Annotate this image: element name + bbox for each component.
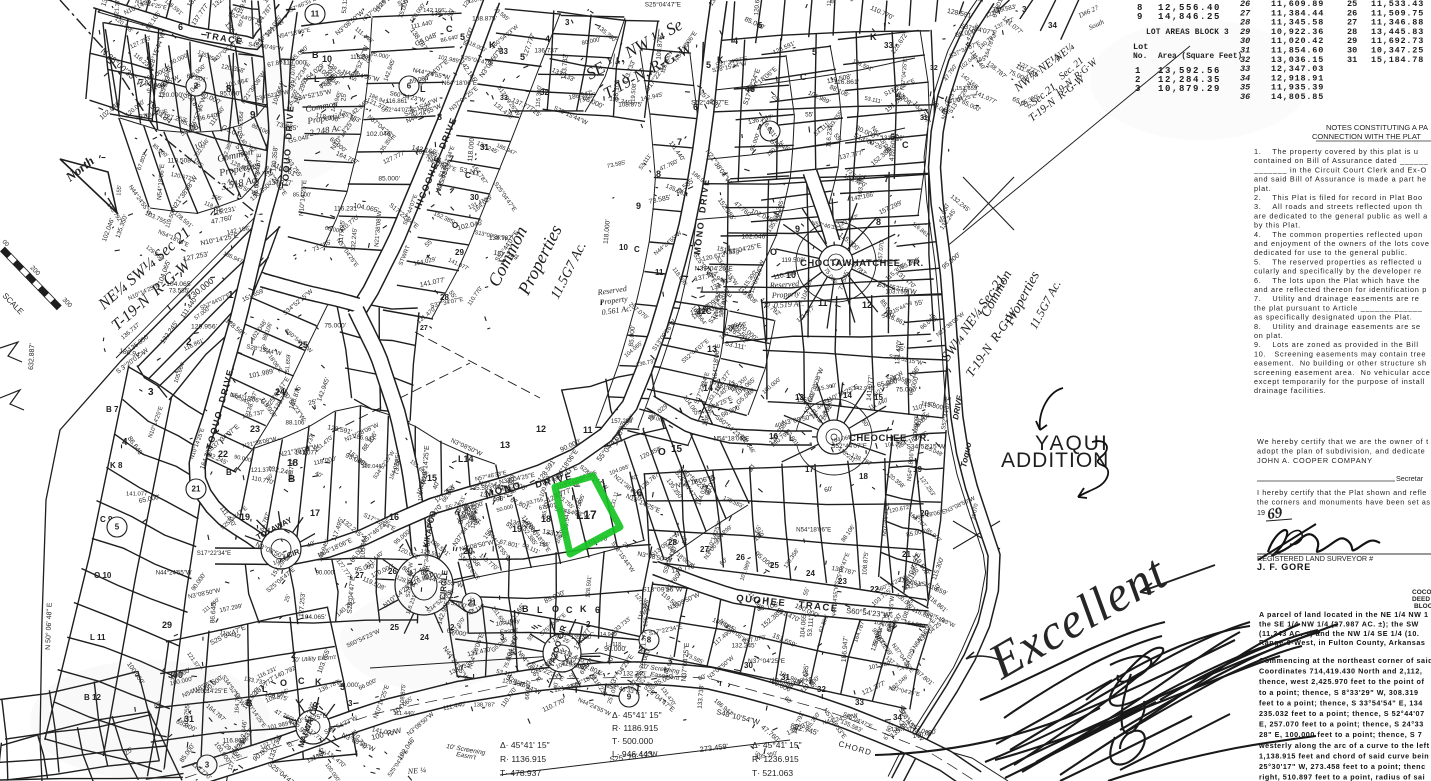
svg-text:120.672': 120.672' (889, 505, 911, 515)
svg-text:60': 60' (824, 486, 834, 495)
svg-text:36: 36 (1240, 92, 1250, 102)
svg-text:and are reflected thereon for: and are reflected thereon for identifica… (1254, 285, 1427, 294)
svg-text:11: 11 (311, 10, 320, 19)
svg-text:75.000': 75.000' (324, 322, 346, 329)
svg-text:85.000': 85.000' (543, 589, 566, 605)
svg-text:119.508': 119.508' (781, 257, 805, 264)
svg-text:27: 27 (420, 325, 428, 332)
svg-text:except temporarily for the pur: except temporarily for the purpose of in… (1254, 377, 1425, 386)
svg-text:55': 55' (527, 633, 536, 643)
svg-text:155': 155' (975, 56, 987, 64)
svg-text:2. This Plat is filed for r: 2. This Plat is filed for record in Plat… (1254, 193, 1423, 202)
svg-text:300: 300 (61, 297, 74, 310)
svg-text:S17°22'34"E: S17°22'34"E (197, 550, 231, 557)
svg-text:632.887': 632.887' (28, 343, 36, 370)
svg-text:19: 19 (1257, 508, 1265, 517)
svg-text:67.801': 67.801' (137, 152, 149, 172)
svg-text:118.000': 118.000' (313, 455, 337, 467)
svg-text:S25°04'47"E: S25°04'47"E (492, 181, 517, 213)
svg-text:S28°15'44"W: S28°15'44"W (552, 105, 588, 127)
svg-text:and said Bill of Assurance is: and said Bill of Assurance is made a par… (1254, 175, 1427, 184)
svg-text:O 10: O 10 (94, 571, 112, 580)
svg-text:and enjoyment of the owners of: and enjoyment of the owners of the lots … (1254, 239, 1430, 248)
svg-text:the corners and monuments have: the corners and monuments have been set … (1257, 498, 1431, 507)
svg-text:137.777': 137.777' (838, 150, 863, 162)
svg-text:3: 3 (348, 699, 353, 708)
svg-text:C: C (634, 245, 640, 254)
svg-text:N21°38'08"W: N21°38'08"W (373, 210, 383, 247)
svg-text:7. Utility and drainage eas: 7. Utility and drainage easements are re (1254, 294, 1420, 303)
svg-text:73.585': 73.585' (648, 194, 671, 205)
svg-text:135.583': 135.583' (722, 495, 744, 510)
svg-text:40': 40' (314, 471, 323, 480)
svg-text:C: C (800, 72, 807, 82)
svg-text:8: 8 (437, 112, 442, 122)
svg-text:34: 34 (1048, 21, 1057, 30)
svg-text:T· 500.000: T· 500.000 (612, 736, 653, 746)
svg-text:12: 12 (862, 300, 872, 310)
svg-text:JOHN A. COOPER COMPANY: JOHN A. COOPER COMPANY (1257, 456, 1373, 465)
svg-text:Area (Square Feet): Area (Square Feet) (1158, 53, 1242, 61)
svg-text:25': 25' (754, 751, 762, 760)
svg-text:CONNECTION WITH THE PLAT: CONNECTION WITH THE PLAT (1312, 132, 1421, 141)
svg-text:40': 40' (432, 480, 441, 490)
svg-text:19: 19 (913, 465, 922, 474)
svg-text:O: O (770, 247, 777, 257)
svg-text:1,138.915 feet and chord of sa: 1,138.915 feet and chord of said curve b… (1259, 751, 1429, 760)
svg-text:155': 155' (539, 542, 550, 548)
svg-text:18: 18 (859, 472, 868, 481)
svg-text:5. The reserved properties: 5. The reserved properties as reflected … (1254, 257, 1422, 266)
svg-text:32: 32 (817, 685, 826, 694)
svg-text:273.459': 273.459' (699, 742, 729, 754)
svg-text:adopt the plan of subdivision,: adopt the plan of subdivision, and dedic… (1257, 447, 1425, 456)
svg-text:133.733': 133.733' (697, 684, 706, 709)
svg-text:127.253': 127.253' (182, 251, 209, 263)
svg-text:101.989': 101.989' (267, 721, 290, 731)
svg-text:easement. No building or othe: easement. No building or other structure… (1254, 359, 1427, 368)
svg-text:dedicated for use to the gener: dedicated for use to the general public. (1254, 248, 1408, 257)
svg-text:Δ· 45°41' 15": Δ· 45°41' 15" (612, 710, 662, 720)
svg-text:4. The common properties re: 4. The common properties reflected upon (1254, 230, 1423, 239)
svg-text:110.770': 110.770' (869, 5, 894, 22)
svg-text:131.470': 131.470' (416, 306, 437, 325)
svg-text:R· 1136.915: R· 1136.915 (500, 754, 546, 764)
svg-text:47.760': 47.760' (659, 159, 679, 173)
svg-text:R· 1186.915: R· 1186.915 (612, 723, 658, 733)
svg-text:136.737': 136.737' (534, 48, 558, 55)
svg-text:11: 11 (583, 425, 593, 435)
svg-text:55': 55' (805, 111, 813, 118)
svg-text:31: 31 (1347, 55, 1357, 65)
svg-text:9: 9 (636, 201, 641, 211)
svg-text:80.000': 80.000' (581, 37, 601, 47)
svg-text:90.000': 90.000' (604, 646, 626, 653)
svg-text:No.: No. (1133, 52, 1147, 61)
svg-text:40': 40' (681, 536, 689, 545)
svg-text:115.300': 115.300' (536, 85, 544, 108)
svg-text:24: 24 (806, 569, 815, 578)
svg-text:C: C (446, 24, 453, 34)
svg-text:102.046': 102.046' (101, 217, 116, 242)
svg-text:40': 40' (449, 8, 456, 16)
svg-text:14,846.25: 14,846.25 (1158, 12, 1221, 22)
svg-text:151.659': 151.659' (285, 354, 293, 376)
svg-text:132.245': 132.245' (623, 670, 647, 677)
svg-text:K 8: K 8 (110, 461, 123, 470)
svg-text:are dedicated to the general p: are dedicated to the general public as w… (1254, 211, 1428, 220)
svg-text:L· 946.443: L· 946.443 (612, 749, 653, 759)
svg-text:T· 478.937: T· 478.937 (500, 768, 541, 778)
svg-text:L14: L14 (458, 454, 474, 464)
svg-text:the SE 1/4 NW 1/4 (27.987 AC.: the SE 1/4 NW 1/4 (27.987 AC. ±); the SW (1259, 619, 1419, 628)
svg-text:5: 5 (812, 47, 817, 57)
svg-text:85.000': 85.000' (743, 16, 766, 32)
svg-text:B: B (312, 50, 319, 60)
svg-text:142.945': 142.945' (640, 92, 663, 103)
svg-text:as specifically designated upo: as specifically designated upon the Plat… (1254, 313, 1413, 322)
svg-text:6. The lots upon the Plat w: 6. The lots upon the Plat which have the (1254, 276, 1420, 285)
svg-text:N64°18'06"E: N64°18'06"E (745, 65, 779, 96)
svg-text:by this Plat.: by this Plat. (1254, 221, 1301, 230)
svg-text:152.385': 152.385' (716, 197, 736, 222)
svg-text:6: 6 (595, 605, 600, 615)
svg-text:00: 00 (1, 239, 10, 248)
svg-text:55': 55' (802, 587, 811, 597)
svg-text:164.787': 164.787' (853, 620, 866, 644)
svg-text:feet to a point; thence, S 33°: feet to a point; thence, S 33°54'54" E, … (1259, 698, 1423, 707)
svg-text:7: 7 (884, 174, 889, 184)
svg-text:25': 25' (897, 346, 905, 353)
svg-text:53.111': 53.111' (521, 543, 540, 556)
svg-text:32: 32 (930, 65, 938, 72)
svg-text:S52°44'07"E: S52°44'07"E (691, 98, 729, 106)
svg-text:S52°44'07"E: S52°44'07"E (831, 442, 867, 450)
svg-text:85.000': 85.000' (378, 175, 400, 182)
svg-text:15: 15 (671, 444, 683, 455)
svg-text:21: 21 (902, 550, 911, 559)
svg-text:C: C (298, 676, 305, 686)
svg-text:5: 5 (706, 60, 711, 70)
svg-text:66.000': 66.000' (358, 678, 378, 692)
svg-text:157.299': 157.299' (219, 603, 243, 615)
svg-text:67.801': 67.801' (915, 669, 935, 687)
svg-text:10,879.29: 10,879.29 (1158, 84, 1221, 94)
svg-text:3: 3 (1022, 5, 1027, 14)
svg-text:Property: Property (771, 289, 801, 300)
svg-text:Secretar: Secretar (1396, 474, 1424, 483)
svg-text:11: 11 (818, 298, 828, 308)
svg-text:B 7: B 7 (106, 405, 119, 414)
svg-text:C: C (566, 605, 573, 615)
svg-text:screening easement area. No v: screening easement area. No vehicular ac… (1254, 368, 1431, 377)
svg-text:80.000': 80.000' (169, 52, 190, 67)
svg-text:right, 510.897 feet to a point: right, 510.897 feet to a point, radius o… (1259, 773, 1425, 781)
svg-text:K: K (870, 32, 877, 42)
svg-text:53.111': 53.111' (807, 616, 816, 637)
svg-text:Coordinates 714,419.430 North: Coordinates 714,419.430 North and 2,112, (1259, 667, 1422, 676)
svg-text:86.640': 86.640' (440, 35, 459, 45)
svg-text:10. Screening easements may: 10. Screening easements may contain tree (1254, 349, 1426, 358)
svg-text:118.000': 118.000' (467, 136, 476, 162)
svg-text:O: O (552, 604, 559, 614)
svg-text:28" E, 100.000 feet to a point: 28" E, 100.000 feet to a point; thence, … (1259, 730, 1422, 739)
svg-text:9. Lots are zoned as provid: 9. Lots are zoned as provided in the Bil… (1254, 340, 1419, 349)
svg-text:12: 12 (536, 424, 546, 434)
svg-text:102.046': 102.046' (742, 234, 767, 241)
svg-text:3: 3 (1135, 84, 1140, 94)
svg-text:6: 6 (178, 22, 183, 32)
svg-text:_______ in the Circuit Court C: _______ in the Circuit Court Clerk and E… (1253, 165, 1427, 174)
svg-text:L: L (537, 605, 543, 615)
svg-text:B: B (226, 468, 232, 477)
svg-text:S34°52'15"W: S34°52'15"W (888, 354, 924, 367)
svg-text:D#6 2?: D#6 2? (1077, 4, 1101, 21)
svg-text:J. F. GORE: J. F. GORE (1257, 562, 1311, 572)
svg-text:40': 40' (748, 463, 757, 473)
svg-text:S52°44'07"E: S52°44'07"E (199, 293, 231, 312)
svg-text:95.000': 95.000' (750, 132, 762, 152)
svg-text:CHORD: CHORD (837, 739, 872, 757)
svg-text:4: 4 (545, 34, 550, 44)
svg-text:104.065': 104.065' (166, 281, 192, 288)
svg-text:50.000: 50.000 (496, 504, 514, 514)
svg-text:73.585': 73.585' (607, 160, 627, 170)
svg-text:104.065': 104.065' (801, 278, 814, 301)
svg-text:129.956': 129.956' (191, 324, 217, 331)
svg-text:116.861': 116.861' (834, 79, 859, 86)
svg-text:120.358': 120.358' (783, 548, 801, 570)
svg-text:18: 18 (541, 514, 551, 524)
svg-text:N54°18'06"E: N54°18'06"E (796, 526, 831, 533)
svg-text:110.770': 110.770' (467, 286, 484, 307)
svg-text:110.770': 110.770' (478, 552, 500, 572)
svg-text:on plat.: on plat. (1254, 331, 1284, 340)
svg-text:55': 55' (914, 299, 924, 308)
svg-text:S13°09'26"W: S13°09'26"W (642, 585, 683, 593)
svg-text:11: 11 (655, 268, 664, 277)
svg-text:17: 17 (805, 465, 814, 474)
svg-text:T· 521.063: T· 521.063 (752, 768, 793, 778)
svg-text:155': 155' (211, 195, 223, 203)
svg-text:N21°38'08"W: N21°38'08"W (242, 436, 278, 449)
svg-text:13: 13 (500, 440, 510, 450)
svg-text:L17: L17 (576, 508, 597, 522)
svg-text:110.770': 110.770' (542, 697, 567, 714)
svg-text:S25°04'47"E: S25°04'47"E (645, 1, 682, 9)
svg-text:131.470': 131.470' (881, 135, 904, 142)
svg-text:73.585': 73.585' (311, 239, 332, 254)
svg-text:N37°04'25"E: N37°04'25"E (888, 686, 921, 699)
svg-text:90.000': 90.000' (316, 571, 336, 577)
svg-text:drainage facilities.: drainage facilities. (1254, 386, 1326, 395)
svg-text:NOTES CONSTITUTING A PA: NOTES CONSTITUTING A PA (1326, 123, 1428, 132)
svg-text:BLOC: BLOC (1414, 603, 1431, 610)
svg-text:SCALE: SCALE (1, 291, 26, 316)
svg-text:the plat pursuant to Article _: the plat pursuant to Article ___________… (1254, 303, 1423, 312)
svg-text:53.111': 53.111' (638, 153, 653, 171)
svg-text:101.989': 101.989' (739, 560, 752, 582)
svg-text:westerly along the arc of a cu: westerly along the arc of a curve to the… (1258, 741, 1430, 750)
svg-text:S25°04'47"E: S25°04'47"E (266, 760, 301, 781)
svg-text:142.945': 142.945' (382, 58, 397, 82)
svg-text:186.947': 186.947' (222, 251, 244, 266)
svg-text:E, 257.070 feet to a point; th: E, 257.070 feet to a point; thence, S 24… (1259, 720, 1424, 729)
svg-text:26: 26 (736, 553, 745, 562)
svg-text:104.065': 104.065' (301, 614, 326, 621)
svg-text:A parcel of land located in th: A parcel of land located in the NE 1/4 N… (1259, 610, 1429, 619)
svg-text:O: O (280, 678, 287, 688)
svg-text:17: 17 (310, 508, 320, 518)
svg-text:14,805.85: 14,805.85 (1271, 92, 1324, 102)
svg-text:235.032 feet to a point; thenc: 235.032 feet to a point; thence, S 52°44… (1259, 709, 1425, 718)
svg-text:S60°54'23"W: S60°54'23"W (283, 328, 313, 355)
svg-text:cularly and specifically by th: cularly and specifically by the develope… (1254, 267, 1422, 276)
svg-text:23: 23 (250, 424, 260, 434)
svg-text:127.253': 127.253' (918, 476, 936, 498)
svg-text:128.591': 128.591' (946, 8, 973, 20)
svg-text:N44°24'55"W: N44°24'55"W (156, 571, 192, 577)
svg-text:N37°04'25"E: N37°04'25"E (748, 657, 786, 665)
svg-text:K: K (580, 604, 587, 614)
svg-text:8. Utility and drainage eas: 8. Utility and drainage easements are se (1254, 322, 1421, 331)
svg-text:25°30'17" W, 273.458 feet to a: 25°30'17" W, 273.458 feet to a point; th… (1259, 762, 1426, 771)
svg-text:118.000': 118.000' (603, 219, 612, 244)
svg-text:I hereby certify that the Plat: I hereby certify that the Plat shown and… (1257, 488, 1427, 497)
svg-text:NE ¼: NE ¼ (406, 765, 426, 776)
svg-text:100.000': 100.000' (762, 377, 783, 396)
svg-text:29: 29 (455, 248, 464, 257)
svg-text:LOT AREAS BLOCK 3: LOT AREAS BLOCK 3 (1146, 29, 1229, 37)
svg-text:67.801': 67.801' (818, 614, 830, 633)
svg-text:contained on Bill of Assurance: contained on Bill of Assurance dated ___… (1254, 156, 1429, 165)
svg-text:15,184.78: 15,184.78 (1371, 55, 1424, 65)
svg-text:9: 9 (1137, 12, 1142, 22)
svg-text:N54°18'06"E: N54°18'06"E (155, 163, 166, 200)
svg-text:DEED: DEED (1412, 596, 1430, 603)
svg-text:29: 29 (162, 620, 172, 630)
svg-text:N 50° 06' 48" E: N 50° 06' 48" E (44, 602, 54, 650)
svg-text:25': 25' (284, 594, 292, 603)
svg-text:plat.: plat. (1254, 184, 1271, 193)
svg-text:155': 155' (116, 185, 123, 196)
svg-text:132.245': 132.245' (159, 320, 180, 345)
svg-text:ADDITION: ADDITION (1001, 449, 1109, 472)
svg-text:N44°24'55"W: N44°24'55"W (577, 697, 612, 718)
svg-text:103.755': 103.755' (885, 290, 908, 296)
svg-text:60': 60' (719, 557, 729, 567)
svg-text:16: 16 (389, 512, 399, 522)
svg-text:142.945': 142.945' (316, 377, 331, 403)
svg-text:33: 33 (855, 698, 864, 707)
svg-text:132.245': 132.245' (350, 227, 359, 251)
svg-text:4: 4 (733, 36, 738, 46)
svg-text:3: 3 (565, 18, 570, 27)
svg-text:132.245': 132.245' (211, 0, 234, 10)
svg-text:N10°14'25"E: N10°14'25"E (200, 231, 240, 247)
svg-text:103.755': 103.755' (144, 210, 169, 226)
svg-text:N57°46'33"E: N57°46'33"E (882, 502, 891, 537)
svg-text:L 11: L 11 (90, 633, 106, 642)
svg-text:53.111': 53.111' (341, 0, 350, 14)
svg-text:We hereby certify that we are: We hereby certify that we are the owner … (1257, 437, 1429, 446)
svg-text:Commencing at the northeast co: Commencing at the northeast corner of sa… (1259, 656, 1431, 665)
svg-text:128.591': 128.591' (772, 40, 796, 56)
svg-text:138.787': 138.787' (985, 60, 1008, 81)
svg-text:86.640': 86.640' (126, 435, 144, 457)
svg-text:141.077': 141.077' (419, 277, 446, 289)
svg-text:88.106': 88.106' (841, 524, 857, 543)
svg-text:(11.243 AC. ±) and the NW 1/4: (11.243 AC. ±) and the NW 1/4 SE 1/4 (10… (1259, 629, 1419, 638)
svg-text:S52°44'07"E: S52°44'07"E (381, 108, 414, 114)
svg-text:157.299': 157.299' (878, 199, 903, 216)
svg-text:128.591': 128.591' (327, 424, 353, 436)
svg-text:101.989': 101.989' (248, 368, 275, 380)
svg-text:104.065': 104.065' (352, 202, 379, 214)
svg-text:9: 9 (795, 224, 800, 234)
svg-text:1. The property covered by: 1. The property covered by this plat is … (1254, 147, 1419, 156)
svg-text:85.000': 85.000' (293, 192, 311, 198)
svg-text:to a point; thence, S 8°33'29": to a point; thence, S 8°33'29" W, 308.31… (1259, 688, 1419, 697)
svg-text:141.077': 141.077' (973, 90, 997, 106)
svg-text:21: 21 (192, 485, 201, 494)
svg-text:3. All roads and streets re: 3. All roads and streets reflected upon … (1254, 202, 1423, 211)
svg-text:53.111': 53.111' (864, 96, 882, 106)
svg-text:South: South (1087, 18, 1105, 32)
svg-text:73.585': 73.585' (169, 287, 189, 294)
svg-text:108.875': 108.875' (861, 551, 870, 575)
svg-text:108.875': 108.875' (472, 15, 497, 22)
svg-text:North: North (62, 153, 97, 185)
svg-text:Δ· 45°41' 15": Δ· 45°41' 15" (500, 740, 550, 750)
svg-text:129.956': 129.956' (237, 0, 251, 15)
svg-text:90.000': 90.000' (233, 454, 252, 464)
svg-text:90.000': 90.000' (338, 682, 359, 689)
svg-text:thence, west 2,425.970 feet to: thence, west 2,425.970 feet to the point… (1259, 677, 1424, 686)
svg-text:3: 3 (148, 387, 154, 398)
svg-text:10: 10 (619, 243, 628, 252)
svg-text:8: 8 (876, 217, 881, 227)
svg-text:Lot: Lot (1133, 42, 1148, 52)
svg-text:COCO: COCO (1412, 589, 1431, 596)
svg-text:5: 5 (115, 523, 120, 532)
